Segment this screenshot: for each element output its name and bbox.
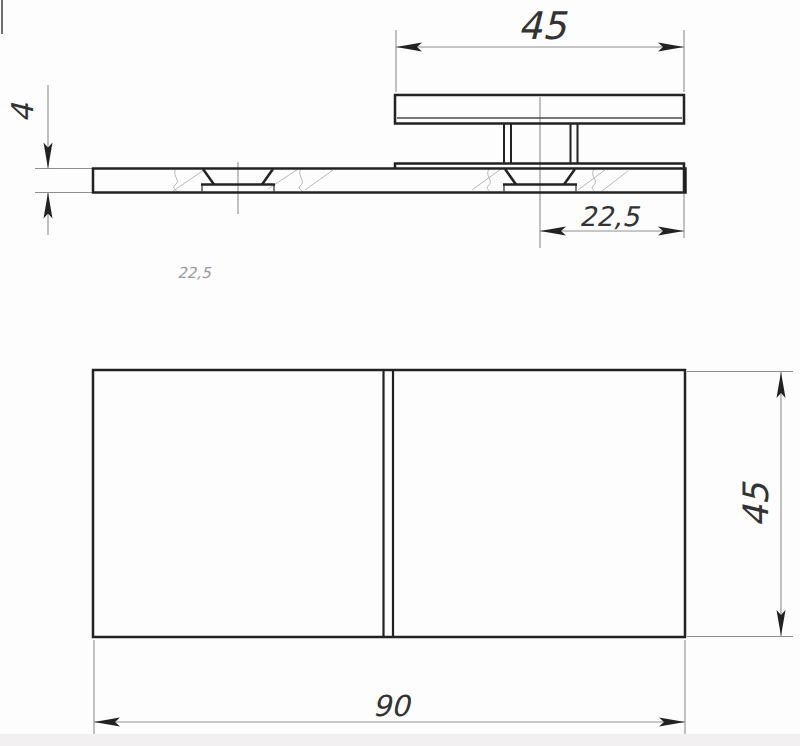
drawing-canvas: 45 4 22,5 45 90 22,5 <box>0 0 800 746</box>
dim-label-top-plate-width: 45 <box>518 4 568 48</box>
background <box>0 0 800 746</box>
dim-label-hole-offset: 22,5 <box>579 201 641 232</box>
bottom-band <box>0 734 800 746</box>
dim-label-base-width: 45 <box>736 481 776 527</box>
dim-label-base-length: 90 <box>373 689 412 723</box>
technical-drawing: 45 4 22,5 45 90 22,5 <box>0 0 800 746</box>
dim-label-base-thickness: 4 <box>5 103 40 123</box>
dim-label-hole-offset-faded: 22,5 <box>177 264 212 282</box>
